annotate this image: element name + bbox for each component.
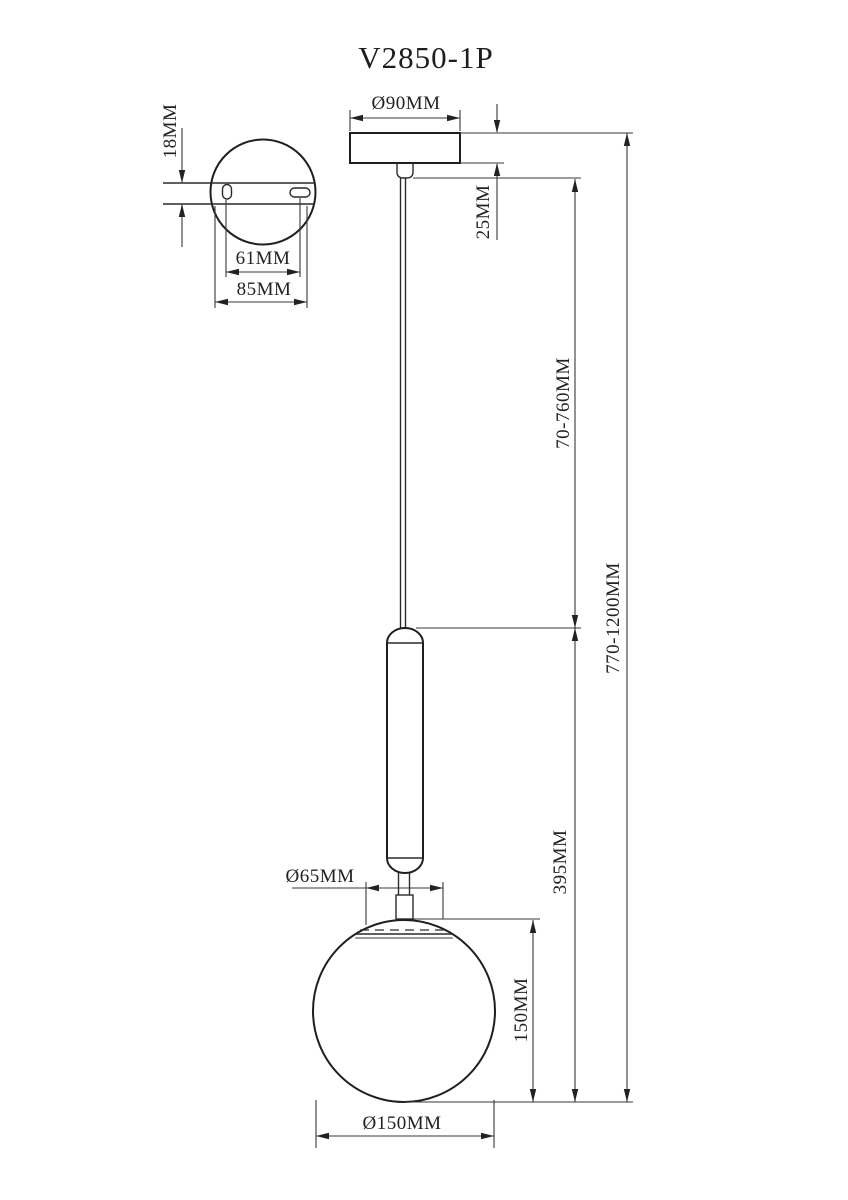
dim-label-cable-length: 70-760MM: [553, 357, 575, 449]
glass-globe: [313, 920, 495, 1102]
dim-fixture-height: [572, 628, 578, 1102]
dim-label-canopy-height: 25MM: [473, 185, 495, 240]
drawing-title: V2850-1P: [358, 40, 493, 76]
drawing-canvas: [0, 0, 848, 1200]
dim-label-total-height: 770-1200MM: [603, 562, 625, 674]
ceiling-canopy: [350, 133, 460, 163]
rod-handle: [387, 628, 423, 873]
dim-label-globe-height: 150MM: [511, 978, 533, 1043]
dim-label-plate-thickness: 18MM: [160, 104, 182, 159]
cable-grip-knob: [397, 163, 413, 178]
dim-label-globe-diameter: Ø150MM: [362, 1113, 441, 1135]
dim-label-canopy-diameter: Ø90MM: [371, 93, 440, 115]
mounting-slot-right: [290, 188, 310, 197]
dim-label-plate-diameter: 85MM: [237, 279, 292, 301]
lamp-socket: [396, 895, 413, 919]
technical-drawing-page: V2850-1P 18MM 61MM 85MM Ø90MM 25MM 70-76…: [0, 0, 848, 1200]
dim-label-hole-spacing: 61MM: [236, 248, 291, 270]
dim-label-fixture-height: 395MM: [550, 830, 572, 895]
dim-label-neck-diameter: Ø65MM: [285, 866, 354, 888]
mounting-slot-left: [223, 185, 232, 200]
front-view: [292, 104, 633, 1148]
